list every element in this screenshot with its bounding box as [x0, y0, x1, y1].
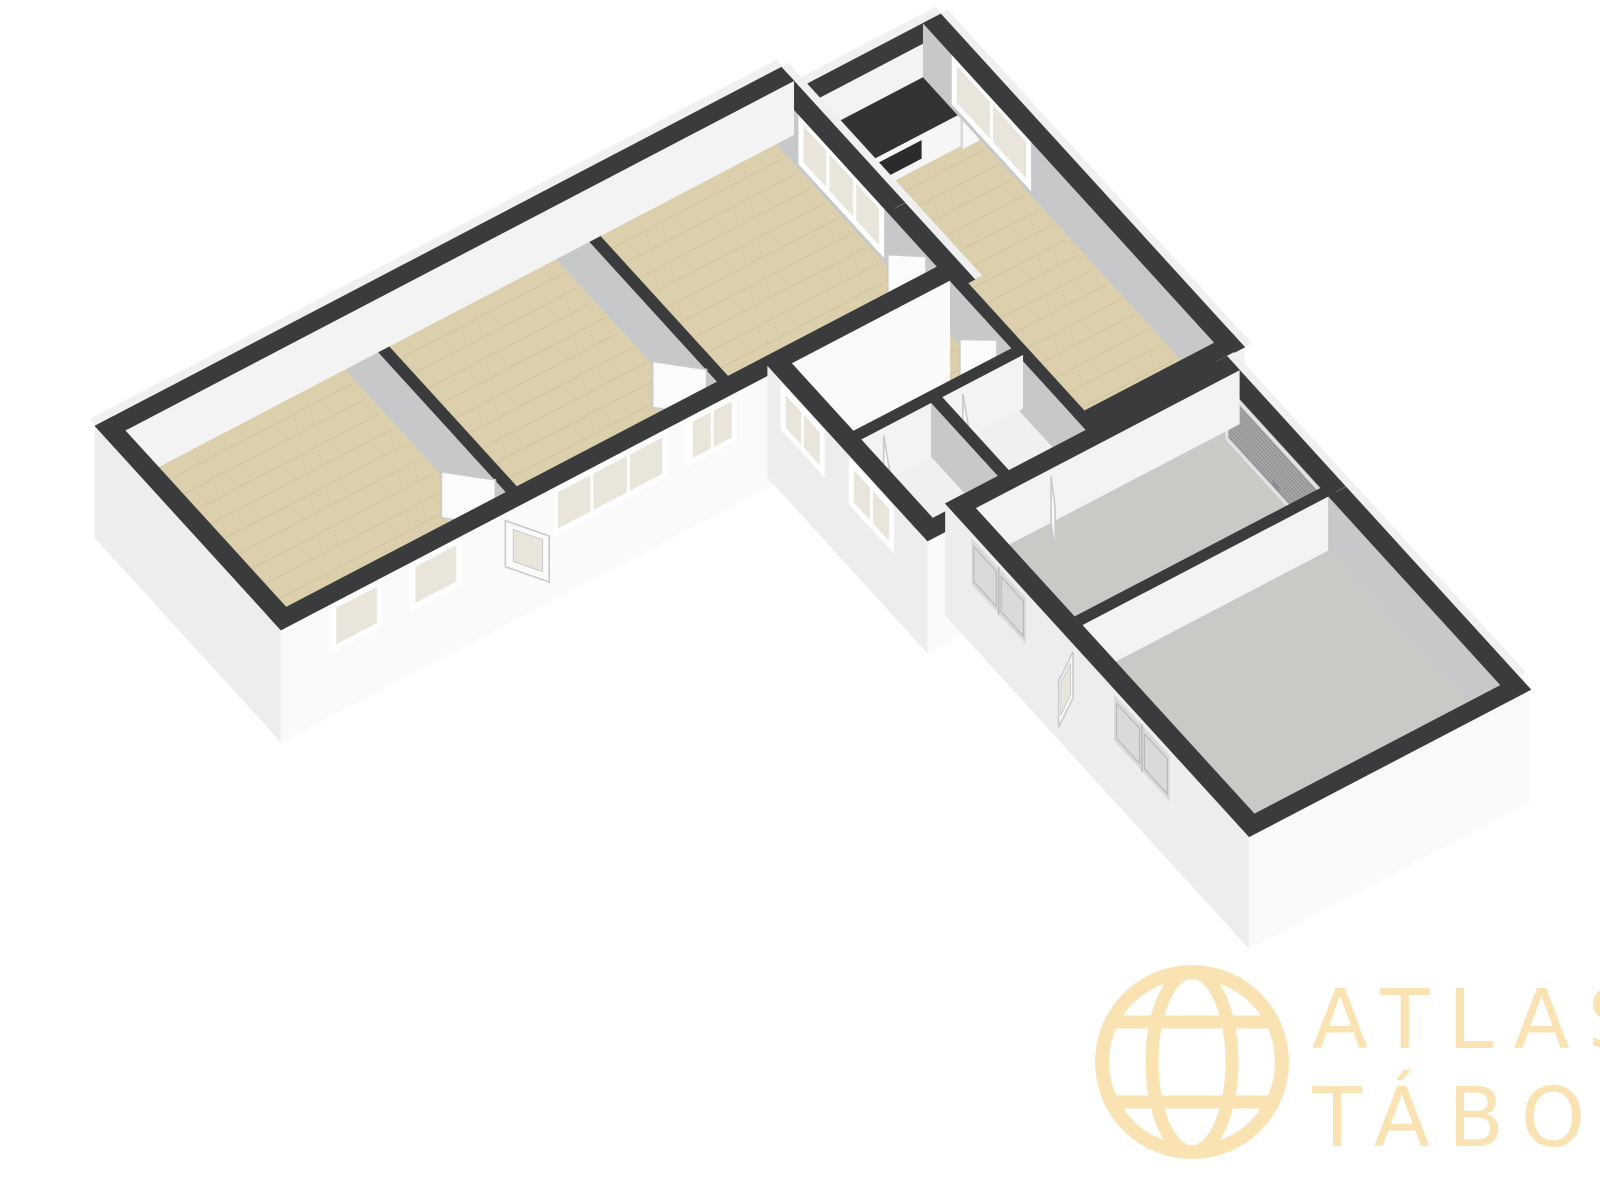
floorplan-canvas: ATLAS TÁBOR — [0, 0, 1600, 1200]
storage-end-wall-face-sw — [1237, 823, 1249, 949]
floorplan-3d-render: ATLAS TÁBOR — [0, 0, 1600, 1200]
globe-icon — [1102, 972, 1282, 1152]
building-3d-model — [90, 7, 1531, 949]
atlas-tabor-logo: ATLAS TÁBOR — [1102, 972, 1600, 1166]
logo-text-line2: TÁBOR — [1311, 1070, 1600, 1166]
logo-text-line1: ATLAS — [1312, 973, 1600, 1068]
hall-south-wall-face-sw — [915, 527, 927, 653]
